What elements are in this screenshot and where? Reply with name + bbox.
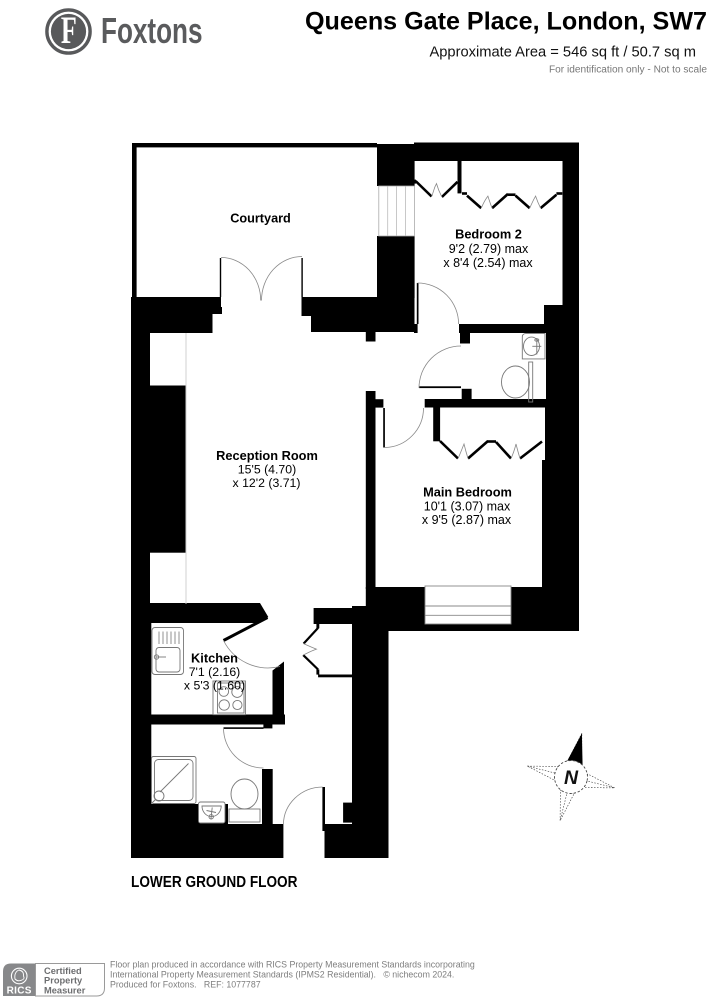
svg-text:RICS: RICS bbox=[7, 986, 32, 997]
svg-text:Floor plan produced in accorda: Floor plan produced in accordance with R… bbox=[110, 960, 475, 970]
svg-text:9'2 (2.79) max: 9'2 (2.79) max bbox=[449, 242, 529, 256]
svg-text:Bedroom 2: Bedroom 2 bbox=[455, 227, 522, 242]
svg-text:For identification only - Not: For identification only - Not to scale bbox=[549, 65, 707, 76]
svg-text:x 5'3 (1.60): x 5'3 (1.60) bbox=[184, 679, 245, 693]
svg-text:15'5 (4.70): 15'5 (4.70) bbox=[238, 463, 296, 477]
svg-text:x 9'5 (2.87) max: x 9'5 (2.87) max bbox=[422, 513, 512, 527]
svg-text:International Property Measure: International Property Measurement Stand… bbox=[110, 970, 454, 980]
svg-text:7'1 (2.16): 7'1 (2.16) bbox=[189, 665, 241, 679]
svg-text:10'1 (3.07) max: 10'1 (3.07) max bbox=[424, 500, 511, 514]
svg-text:Courtyard: Courtyard bbox=[230, 212, 291, 226]
svg-text:Kitchen: Kitchen bbox=[191, 651, 238, 666]
svg-text:x 12'2 (3.71): x 12'2 (3.71) bbox=[233, 476, 301, 490]
svg-text:Produced for Foxtons. REF: 1: Produced for Foxtons. REF: 1077787 bbox=[110, 980, 261, 990]
svg-text:Approximate Area = 546 sq ft /: Approximate Area = 546 sq ft / 50.7 sq m bbox=[429, 45, 696, 61]
svg-text:F: F bbox=[61, 9, 77, 53]
svg-text:x 8'4 (2.54) max: x 8'4 (2.54) max bbox=[443, 256, 533, 270]
svg-text:Property: Property bbox=[44, 976, 83, 986]
svg-text:LOWER GROUND FLOOR: LOWER GROUND FLOOR bbox=[131, 874, 298, 891]
svg-text:Foxtons: Foxtons bbox=[101, 10, 203, 51]
svg-text:Certified: Certified bbox=[44, 966, 82, 976]
svg-text:Measurer: Measurer bbox=[44, 985, 86, 995]
svg-text:Queens Gate Place, London, SW7: Queens Gate Place, London, SW7 bbox=[305, 8, 707, 36]
svg-text:Reception Room: Reception Room bbox=[216, 448, 318, 463]
svg-text:N: N bbox=[564, 767, 579, 789]
svg-text:Main Bedroom: Main Bedroom bbox=[423, 485, 512, 500]
